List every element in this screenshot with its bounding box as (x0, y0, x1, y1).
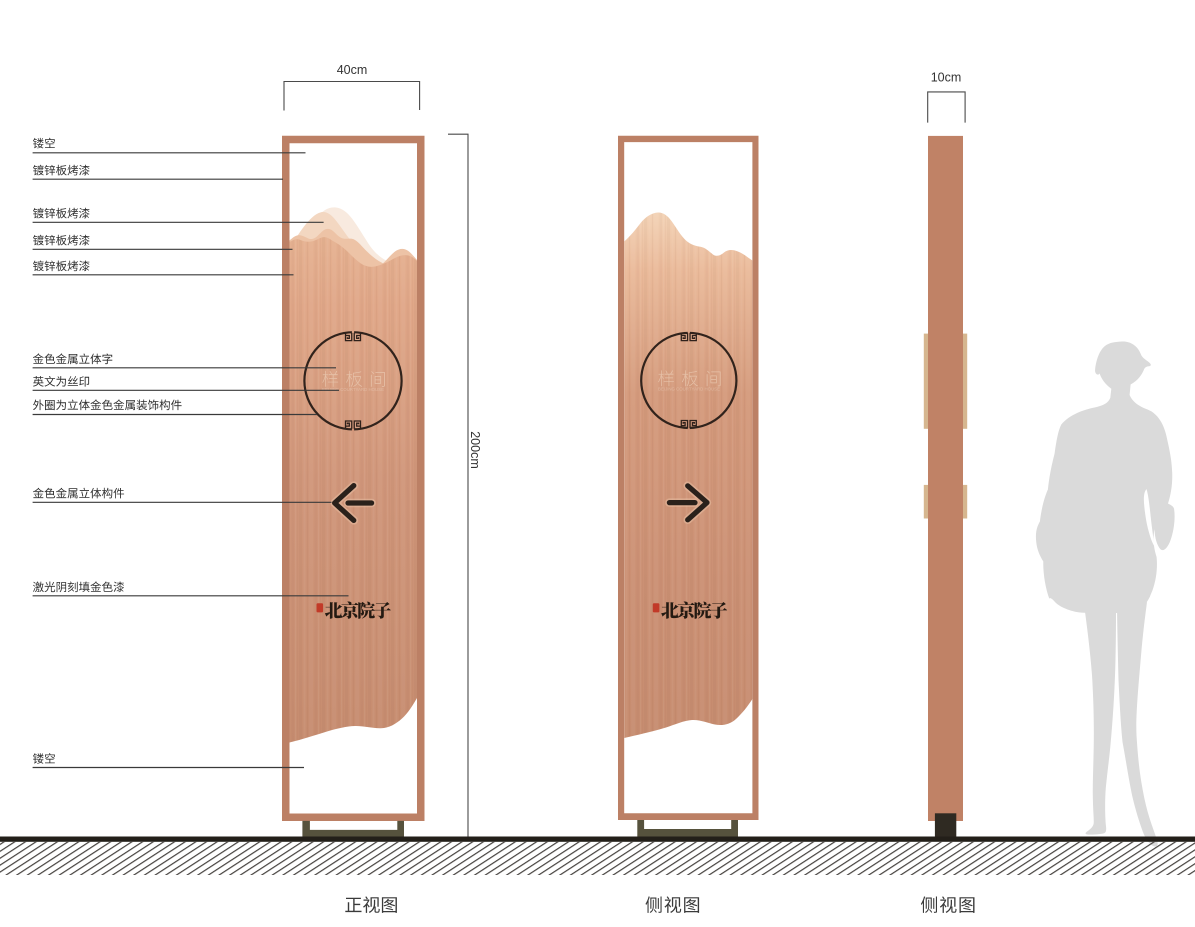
svg-text:BEIJING COURTYARD HOUSE: BEIJING COURTYARD HOUSE (322, 387, 384, 392)
svg-text:200cm: 200cm (468, 431, 482, 469)
svg-text:10cm: 10cm (931, 71, 962, 85)
svg-text:BEIJING COURTYARD HOUSE: BEIJING COURTYARD HOUSE (658, 387, 720, 392)
svg-text:40cm: 40cm (337, 63, 368, 77)
